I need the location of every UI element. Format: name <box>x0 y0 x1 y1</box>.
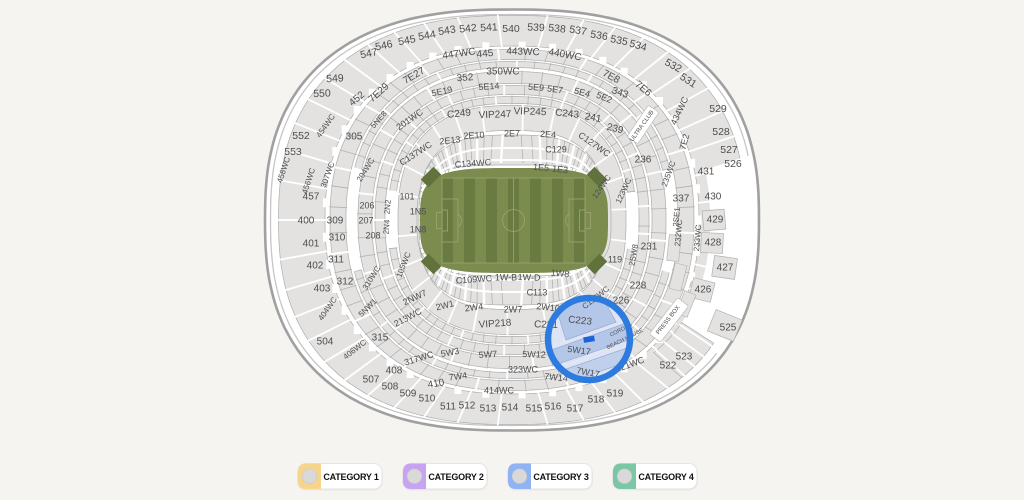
svg-text:549: 549 <box>326 72 344 85</box>
svg-text:2E10: 2E10 <box>463 130 485 141</box>
svg-text:414WC: 414WC <box>484 385 515 395</box>
svg-text:527: 527 <box>720 144 738 156</box>
svg-text:5W12: 5W12 <box>522 349 546 360</box>
svg-text:C113: C113 <box>527 287 548 297</box>
svg-text:1N8: 1N8 <box>410 224 427 234</box>
svg-text:508: 508 <box>382 382 399 393</box>
svg-text:518: 518 <box>588 395 605 406</box>
svg-text:526: 526 <box>724 158 742 170</box>
svg-text:517: 517 <box>567 404 584 415</box>
svg-text:352: 352 <box>456 72 474 84</box>
svg-text:408: 408 <box>386 366 403 377</box>
svg-text:2N2: 2N2 <box>382 199 392 215</box>
svg-text:CATEGORY 4: CATEGORY 4 <box>638 472 694 482</box>
svg-text:312: 312 <box>337 277 354 288</box>
svg-text:443WC: 443WC <box>506 46 540 58</box>
svg-text:510: 510 <box>419 394 436 405</box>
svg-text:401: 401 <box>303 239 320 250</box>
svg-text:1N5: 1N5 <box>410 206 427 216</box>
svg-text:5E9: 5E9 <box>528 82 545 93</box>
svg-text:428: 428 <box>705 238 722 249</box>
svg-text:402: 402 <box>307 261 324 272</box>
svg-text:1W8: 1W8 <box>550 267 569 279</box>
svg-text:1W-D: 1W-D <box>517 272 541 283</box>
svg-text:541: 541 <box>480 21 498 34</box>
svg-text:426: 426 <box>695 285 712 296</box>
svg-text:1E3: 1E3 <box>552 163 569 175</box>
svg-text:CATEGORY 1: CATEGORY 1 <box>323 472 379 482</box>
svg-text:550: 550 <box>313 87 331 100</box>
svg-text:311: 311 <box>328 255 344 266</box>
svg-text:2N4: 2N4 <box>381 219 391 235</box>
svg-text:315: 315 <box>372 333 389 344</box>
svg-text:VIP218: VIP218 <box>478 317 512 330</box>
svg-text:528: 528 <box>712 126 730 138</box>
svg-text:400: 400 <box>298 216 315 227</box>
svg-text:504: 504 <box>317 337 334 348</box>
svg-text:457: 457 <box>303 192 320 203</box>
svg-text:5E14: 5E14 <box>478 81 500 92</box>
svg-text:CATEGORY 2: CATEGORY 2 <box>428 472 484 482</box>
svg-text:540: 540 <box>502 23 520 35</box>
svg-text:522: 522 <box>660 361 677 372</box>
svg-text:VIP247: VIP247 <box>478 109 512 121</box>
svg-text:427: 427 <box>717 263 734 274</box>
svg-text:2W7: 2W7 <box>504 304 523 314</box>
svg-text:552: 552 <box>292 130 310 142</box>
svg-text:310: 310 <box>329 233 346 244</box>
svg-text:337: 337 <box>673 194 690 205</box>
svg-text:429: 429 <box>707 215 724 226</box>
svg-text:514: 514 <box>502 403 519 414</box>
svg-text:403: 403 <box>314 284 331 295</box>
svg-text:516: 516 <box>545 402 562 413</box>
svg-text:5W7: 5W7 <box>478 349 497 360</box>
svg-text:1E5: 1E5 <box>533 162 550 173</box>
svg-text:309: 309 <box>327 216 344 227</box>
svg-text:323WC: 323WC <box>508 364 539 374</box>
svg-text:350WC: 350WC <box>486 67 519 78</box>
svg-text:208: 208 <box>365 230 380 240</box>
svg-text:512: 512 <box>459 401 476 412</box>
svg-text:519: 519 <box>607 389 624 400</box>
svg-text:CATEGORY 3: CATEGORY 3 <box>533 472 589 482</box>
svg-text:236: 236 <box>635 155 652 166</box>
svg-text:207: 207 <box>358 215 373 225</box>
svg-text:513: 513 <box>480 404 497 415</box>
svg-text:1W-B: 1W-B <box>495 272 517 282</box>
svg-text:2E7: 2E7 <box>504 128 520 138</box>
svg-text:231: 231 <box>641 242 658 253</box>
svg-text:507: 507 <box>363 375 380 386</box>
svg-text:228: 228 <box>630 281 647 292</box>
svg-text:C129: C129 <box>545 144 567 154</box>
svg-text:511: 511 <box>440 402 456 413</box>
svg-text:101: 101 <box>399 191 414 201</box>
svg-text:539: 539 <box>527 21 545 34</box>
svg-text:119: 119 <box>608 254 622 264</box>
svg-text:431: 431 <box>698 167 715 178</box>
svg-text:VIP245: VIP245 <box>513 106 547 118</box>
svg-text:529: 529 <box>709 103 727 115</box>
svg-text:430: 430 <box>705 192 722 203</box>
svg-text:523: 523 <box>676 352 693 363</box>
svg-text:525: 525 <box>720 323 737 334</box>
svg-text:515: 515 <box>526 404 543 415</box>
svg-text:445: 445 <box>476 48 494 60</box>
svg-text:542: 542 <box>459 22 478 36</box>
svg-text:538: 538 <box>548 22 567 36</box>
svg-text:305: 305 <box>346 132 363 143</box>
svg-text:509: 509 <box>400 389 417 400</box>
svg-text:553: 553 <box>284 146 302 158</box>
svg-text:206: 206 <box>359 200 374 210</box>
svg-text:2E4: 2E4 <box>540 129 557 140</box>
